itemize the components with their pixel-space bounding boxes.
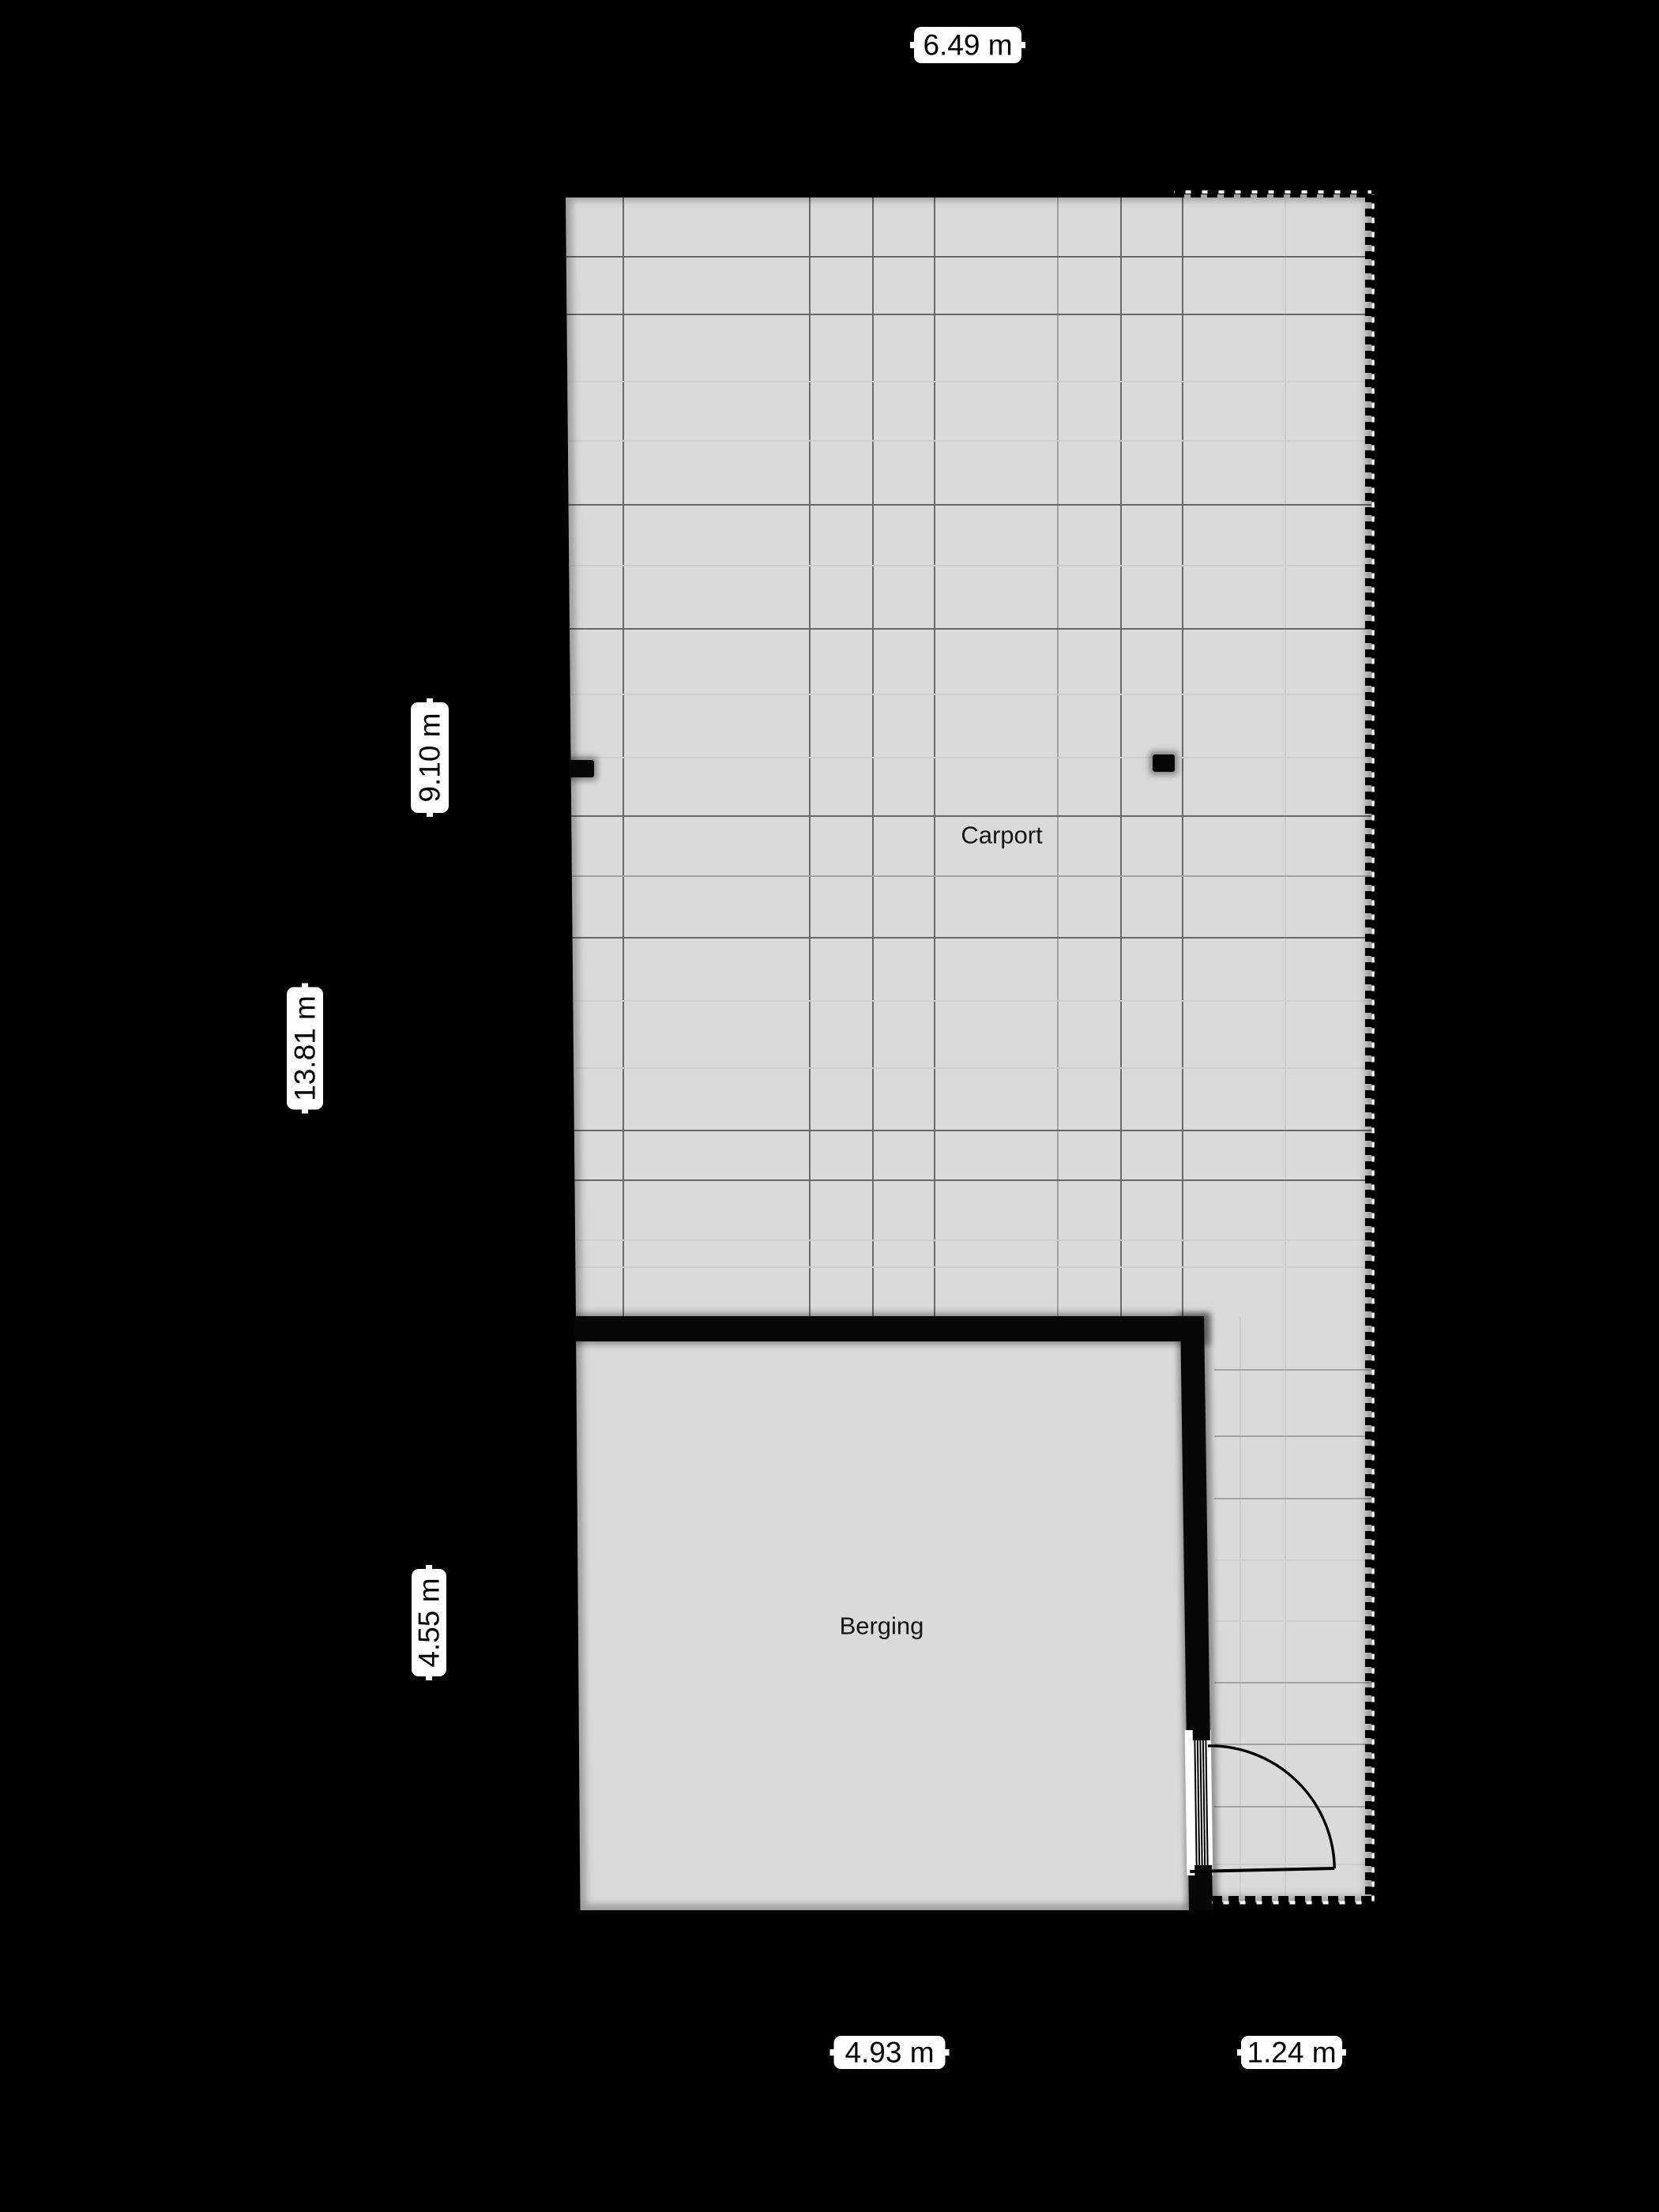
svg-text:13.81 m: 13.81 m (289, 995, 322, 1101)
svg-text:Carport: Carport (961, 822, 1043, 849)
svg-text:1.24 m: 1.24 m (1247, 2037, 1336, 2069)
svg-text:6.49 m: 6.49 m (923, 29, 1012, 62)
svg-text:4.55 m: 4.55 m (413, 1578, 446, 1667)
svg-text:4.93 m: 4.93 m (845, 2037, 934, 2069)
svg-text:Berging: Berging (840, 1612, 924, 1640)
svg-text:9.10 m: 9.10 m (414, 713, 446, 802)
